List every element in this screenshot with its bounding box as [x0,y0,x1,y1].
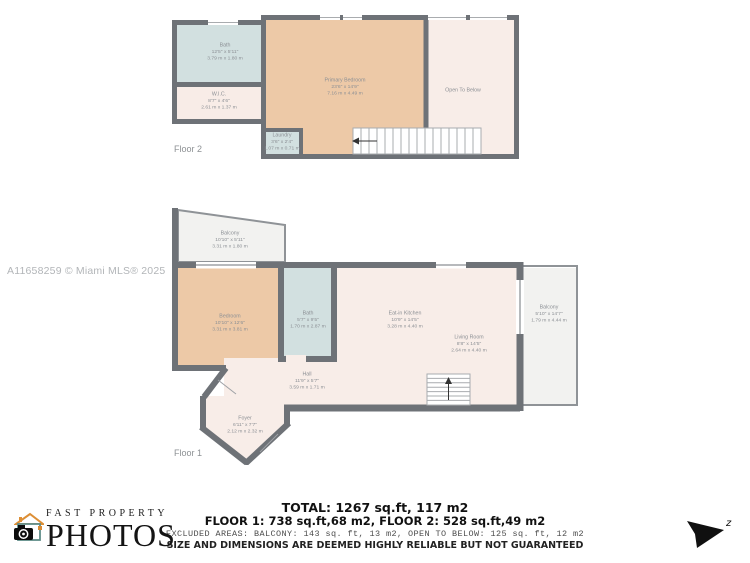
room-label-wic: W.I.C. 8'7" x 4'6" 2.61 m x 1.37 m [201,91,237,111]
floor1-caption: Floor 1 [174,448,202,458]
room-label-laundry: Laundry 3'6" x 2'4" 1.07 m x 0.71 m [264,132,300,152]
floor2-caption: Floor 2 [174,144,202,154]
room-label-hall: Hall 11'9" x 5'7" 3.59 m x 1.71 m [289,371,325,391]
floor1-plan: Balcony 10'10" x 5'11" 3.31 m x 1.80 m B… [168,200,583,465]
room-label-bath-floor2: Bath 12'5" x 5'11" 3.79 m x 1.80 m [207,42,243,62]
room-label-living-room: Living Room 8'8" x 14'5" 2.64 m x 4.40 m [451,334,487,354]
watermark: A11658259 © Miami MLS® 2025 [7,265,165,277]
floorplan-image: A11658259 © Miami MLS® 2025 [0,0,750,563]
fast-property-photos-logo: FAST PROPERTY PHOTOS [14,508,184,558]
compass-arrow-icon: z [684,514,736,556]
room-label-bedroom: Bedroom 10'10" x 12'6" 3.31 m x 3.81 m [212,313,248,333]
room-label-open-to-below: Open To Below [445,86,481,93]
room-label-primary-bedroom: Primary Bedroom 23'6" x 14'9" 7.16 m x 4… [324,77,365,97]
room-label-eat-in-kitchen: Eat-in Kitchen 10'9" x 14'5" 3.28 m x 4.… [387,310,423,330]
compass-label: z [725,518,732,529]
room-label-foyer: Foyer 6'11" x 7'7" 2.12 m x 2.32 m [227,415,263,435]
floor2-plan: Bath 12'5" x 5'11" 3.79 m x 1.80 m W.I.C… [170,8,522,162]
room-label-balcony-upper: Balcony 10'10" x 5'11" 3.31 m x 1.80 m [212,230,248,250]
logo-line2: PHOTOS [46,520,176,550]
house-camera-icon [14,512,44,546]
room-label-balcony-right: Balcony 5'10" x 14'7" 1.79 m x 4.44 m [531,304,567,324]
room-label-bath-floor1: Bath 5'7" x 9'5" 1.70 m x 2.87 m [290,310,326,330]
